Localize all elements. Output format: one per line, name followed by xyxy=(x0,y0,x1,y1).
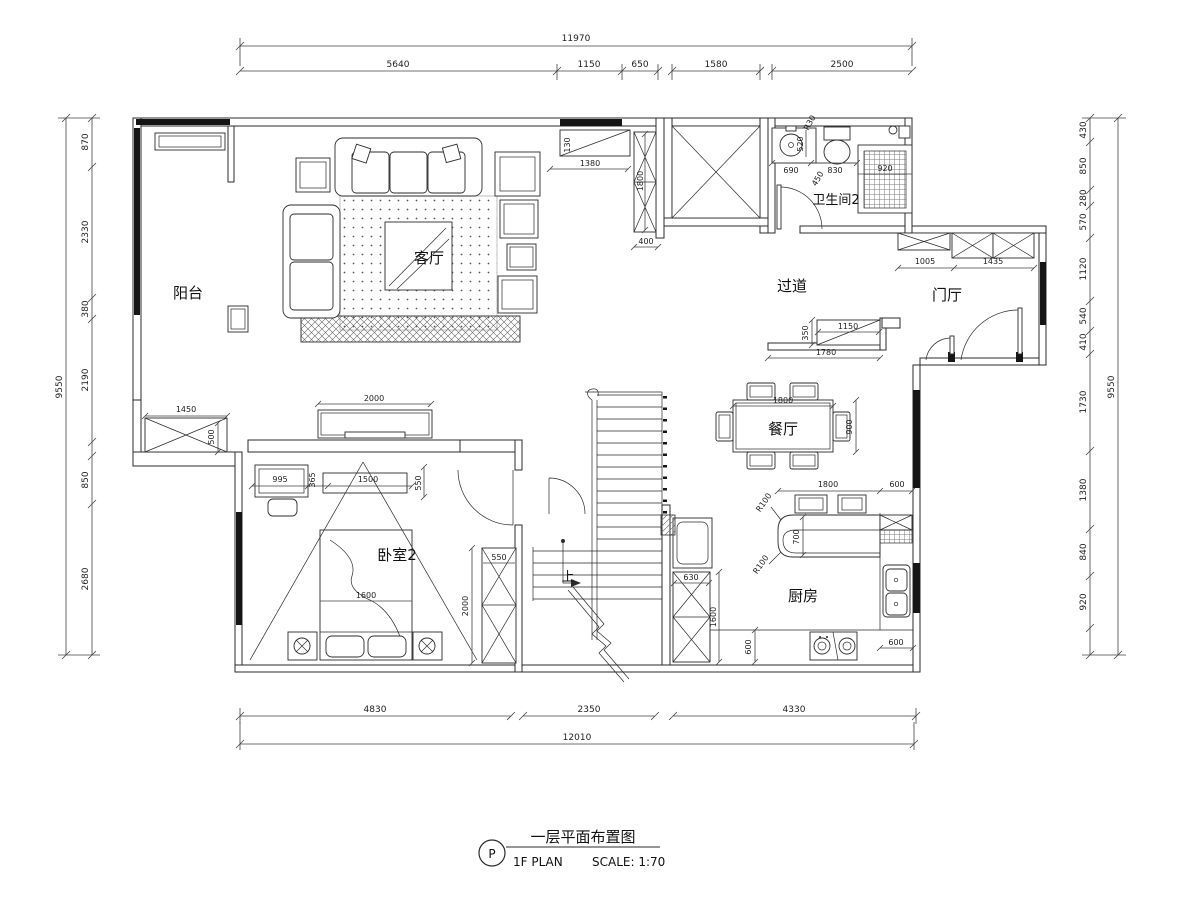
dim-left-seg: 2680 xyxy=(81,567,91,590)
floor-plan-canvas: 11970 5640 1150 650 1580 2500 4830 2350 … xyxy=(0,0,1200,910)
dim-left-seg: 2190 xyxy=(81,368,91,391)
room-dining: 1800 900 餐厅 xyxy=(716,383,859,469)
kitchen-sink-icon xyxy=(883,565,910,617)
drawing-scale: SCALE: 1:70 xyxy=(592,855,665,869)
dim-right-seg: 1380 xyxy=(1079,478,1089,501)
dim-bar-r1: R100 xyxy=(754,491,773,513)
drawing-title: 一层平面布置图 xyxy=(530,828,635,846)
dim-bottom-seg: 4830 xyxy=(364,705,387,715)
dim-top-seg: 650 xyxy=(631,60,648,70)
dim-k-gap: 600 xyxy=(888,638,903,647)
dim-foyer-cab-b: 1435 xyxy=(983,257,1003,266)
window-balcony-left xyxy=(134,128,140,315)
window-living-top xyxy=(560,119,622,126)
bar-stools xyxy=(795,495,866,513)
dim-bar-r2: R100 xyxy=(751,553,770,575)
dim-right-seg: 1120 xyxy=(1079,257,1089,280)
dim-shoe-w: 1150 xyxy=(838,322,858,331)
wall-hatch-block xyxy=(882,318,900,328)
balcony-storage-cabinet: 1450 500 xyxy=(142,405,230,455)
sideboard-top: 130 1380 xyxy=(547,130,631,172)
dim-right-seg: 570 xyxy=(1079,213,1089,230)
dim-bar-d: 700 xyxy=(792,529,801,544)
room-foyer: 1005 1435 门厅 xyxy=(895,233,1037,362)
dim-top-seg: 5640 xyxy=(387,60,410,70)
dim-left-seg: 2330 xyxy=(81,220,91,243)
dim-dining-w: 1800 xyxy=(773,396,793,405)
dim-bath-sink: 690 xyxy=(783,166,798,175)
dim-bed-w: 1600 xyxy=(356,591,376,600)
dim-bar-w: 1800 xyxy=(818,480,838,489)
window-bedroom-left xyxy=(236,512,242,625)
dim-right-seg: 410 xyxy=(1079,333,1089,350)
dim-right-seg: 1730 xyxy=(1079,390,1089,413)
dim-tv-w: 2000 xyxy=(364,394,384,403)
stool xyxy=(268,499,297,516)
dim-bed-a: 995 xyxy=(272,475,287,484)
tv-icon xyxy=(345,432,405,438)
drain-icon xyxy=(889,126,897,134)
tv-cabinet: 2000 xyxy=(315,394,434,438)
dim-bar-gap: 600 xyxy=(889,480,904,489)
dim-foyer-cab-a: 1005 xyxy=(915,257,935,266)
dim-left-total: 9550 xyxy=(55,375,65,398)
dim-left-seg: 380 xyxy=(81,300,91,317)
dim-balcony-cabinet-d: 500 xyxy=(207,429,216,444)
dimension-chain-bottom: 4830 2350 4330 12010 xyxy=(236,705,920,750)
dim-top-seg: 1580 xyxy=(705,60,728,70)
dimension-chain-top: 11970 5640 1150 650 1580 2500 xyxy=(236,34,916,80)
dim-right-seg: 840 xyxy=(1079,543,1089,560)
foyer-cabinets xyxy=(898,233,1034,258)
dim-hall-w: 1780 xyxy=(816,348,836,357)
dim-left-seg: 850 xyxy=(81,471,91,488)
dim-ward-h: 2000 xyxy=(461,596,470,616)
dim-shaft-offset: 400 xyxy=(638,237,653,246)
dim-top-total: 11970 xyxy=(562,34,591,44)
shoe-cabinet: 1150 350 1780 xyxy=(765,317,883,361)
dim-sideboard-h: 130 xyxy=(563,137,572,152)
room-label-bedroom2: 卧室2 xyxy=(377,546,417,564)
room-bathroom2: 690 830 450 920 520 R30 卫生间2 xyxy=(769,114,912,229)
pillow xyxy=(326,636,364,657)
dim-right-seg: 850 xyxy=(1079,157,1089,174)
dim-top-seg: 1150 xyxy=(578,60,601,70)
fridge xyxy=(673,518,712,568)
pillow xyxy=(368,636,406,657)
dim-right-seg: 920 xyxy=(1079,593,1089,610)
dim-bath-shower: 920 xyxy=(877,164,892,173)
wardrobe: 550 2000 xyxy=(461,545,516,666)
window-dining-right xyxy=(913,390,920,488)
window-foyer-right xyxy=(1040,262,1046,325)
dimension-chain-right: 430 850 280 570 1120 540 410 1730 1380 8… xyxy=(1079,114,1126,659)
sofa-large xyxy=(335,138,482,196)
dim-bed-d: 550 xyxy=(414,475,423,490)
room-label-kitchen: 厨房 xyxy=(788,587,818,605)
dim-bed-b: 365 xyxy=(308,472,317,487)
room-label-foyer: 门厅 xyxy=(932,286,962,304)
stairs: 上 xyxy=(533,389,675,682)
dim-k-d: 600 xyxy=(744,639,753,654)
dim-bath-wc: 830 xyxy=(827,166,842,175)
dim-cabinet-h: 1800 xyxy=(636,171,645,191)
title-tag: P xyxy=(488,847,495,861)
room-label-balcony: 阳台 xyxy=(173,284,203,302)
dim-right-seg: 540 xyxy=(1079,307,1089,324)
stairs-up-label: 上 xyxy=(561,570,574,585)
dim-shoe-d: 350 xyxy=(801,325,810,340)
room-label-dining: 餐厅 xyxy=(768,420,798,438)
dim-ward-w: 550 xyxy=(491,553,506,562)
title-block: P 一层平面布置图 1F PLAN SCALE: 1:70 xyxy=(479,828,665,869)
dim-dining-d: 900 xyxy=(845,419,854,434)
corridor-door xyxy=(549,478,585,514)
dim-left-seg: 870 xyxy=(81,133,91,150)
elevator-shaft xyxy=(672,126,760,218)
room-bedroom2: 2000 995 365 1500 550 1600 xyxy=(249,394,585,666)
shower-area xyxy=(858,145,912,213)
dim-bottom-seg: 4330 xyxy=(783,705,806,715)
dim-k-h: 1600 xyxy=(709,607,718,627)
dim-bath-depth: 520 xyxy=(796,136,805,151)
nightstand-left xyxy=(288,632,317,660)
drawing-subtitle: 1F PLAN xyxy=(513,855,563,869)
floor-plan-page: 11970 5640 1150 650 1580 2500 4830 2350 … xyxy=(0,0,1200,910)
window-balcony-top xyxy=(136,119,230,125)
dresser xyxy=(255,465,308,516)
bedroom-door xyxy=(458,470,513,525)
dim-k-cab: 630 xyxy=(683,573,698,582)
entry-doors xyxy=(926,308,1023,362)
dim-top-seg: 2500 xyxy=(831,60,854,70)
dim-bottom-seg: 2350 xyxy=(578,705,601,715)
room-label-bathroom2: 卫生间2 xyxy=(812,193,859,208)
window-kitchen-right xyxy=(913,563,920,613)
stair-handrail xyxy=(588,389,599,640)
dim-sideboard-w: 1380 xyxy=(580,159,600,168)
dim-balcony-cabinet-w: 1450 xyxy=(176,405,196,414)
room-kitchen: 700 R100 R100 1800 600 630 1600 xyxy=(671,480,916,665)
toilet-icon xyxy=(824,127,850,164)
sofa-small xyxy=(283,205,340,318)
throw-pillow xyxy=(442,144,460,162)
dim-bottom-total: 12010 xyxy=(563,733,592,743)
dimension-chain-left: 870 2330 380 2190 850 2680 9550 xyxy=(55,114,100,659)
room-label-living: 客厅 xyxy=(414,249,444,267)
balcony-cabinet xyxy=(155,133,225,150)
media-wall-band xyxy=(301,316,520,342)
dim-bath-mid: 450 xyxy=(810,170,825,188)
new-partition-wall xyxy=(248,440,460,452)
room-label-hallway: 过道 xyxy=(777,277,807,295)
dim-right-total: 9550 xyxy=(1107,375,1117,398)
room-living: 客厅 130 1380 1800 400 xyxy=(283,130,661,342)
dim-right-seg: 430 xyxy=(1079,121,1089,138)
fixture-box xyxy=(899,126,910,138)
stove-icon xyxy=(810,632,857,660)
kitchen-tall-cabinets: 630 1600 xyxy=(671,569,722,665)
nightstand-right xyxy=(413,632,442,660)
dim-right-seg: 280 xyxy=(1079,189,1089,206)
